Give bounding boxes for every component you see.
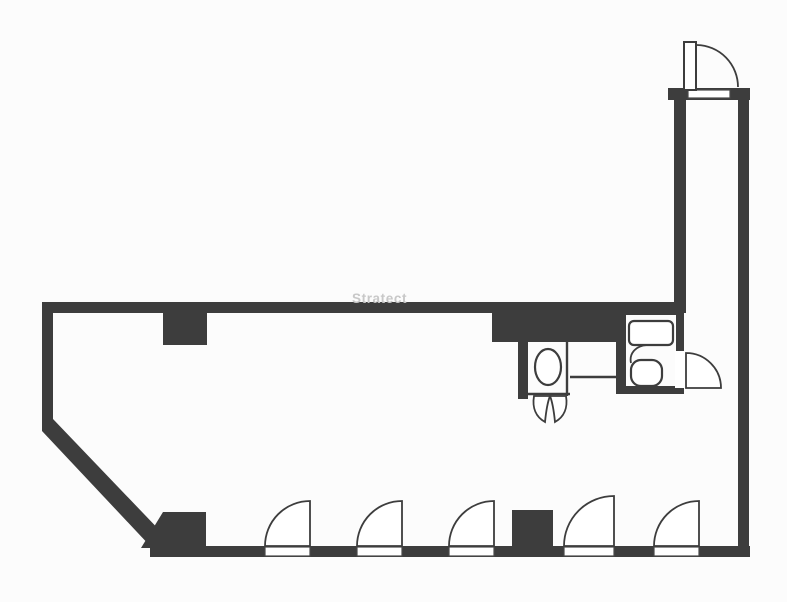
door-swing bbox=[357, 501, 402, 546]
wc-right-door-swing bbox=[686, 353, 721, 388]
wc-left-side-wall bbox=[518, 342, 528, 399]
sink-counter-icon bbox=[629, 321, 673, 345]
column bbox=[512, 510, 553, 548]
entrance-door bbox=[684, 42, 738, 98]
door-sill bbox=[449, 547, 494, 556]
door-sill bbox=[654, 547, 699, 556]
wc-left-cubicle bbox=[528, 342, 616, 422]
door-swing bbox=[654, 501, 699, 546]
wash-basin-icon bbox=[535, 349, 561, 385]
left-wall bbox=[42, 302, 53, 425]
door-swing bbox=[564, 496, 614, 546]
double-door-left-leaf-icon bbox=[533, 396, 550, 422]
door-swing bbox=[449, 501, 494, 546]
door-sill bbox=[564, 547, 614, 556]
entrance-door-leaf bbox=[684, 42, 696, 90]
column bbox=[163, 313, 207, 345]
door-sill bbox=[357, 547, 402, 556]
service-wall-block bbox=[492, 302, 628, 342]
toilet-bowl-icon bbox=[631, 360, 662, 386]
entrance-opening bbox=[688, 90, 730, 98]
watermark-text: Stratect bbox=[352, 291, 407, 306]
wc-right-door-opening bbox=[675, 351, 685, 388]
entrance-door-swing-arc bbox=[697, 45, 738, 87]
double-door-right-leaf-icon bbox=[550, 396, 567, 422]
corridor-left-wall bbox=[674, 88, 686, 313]
right-wall bbox=[738, 88, 749, 557]
diagonal-wall bbox=[42, 419, 166, 548]
door-swing bbox=[265, 501, 310, 546]
floor-plan-page: Stratect bbox=[0, 0, 787, 602]
door-sill bbox=[265, 547, 310, 556]
